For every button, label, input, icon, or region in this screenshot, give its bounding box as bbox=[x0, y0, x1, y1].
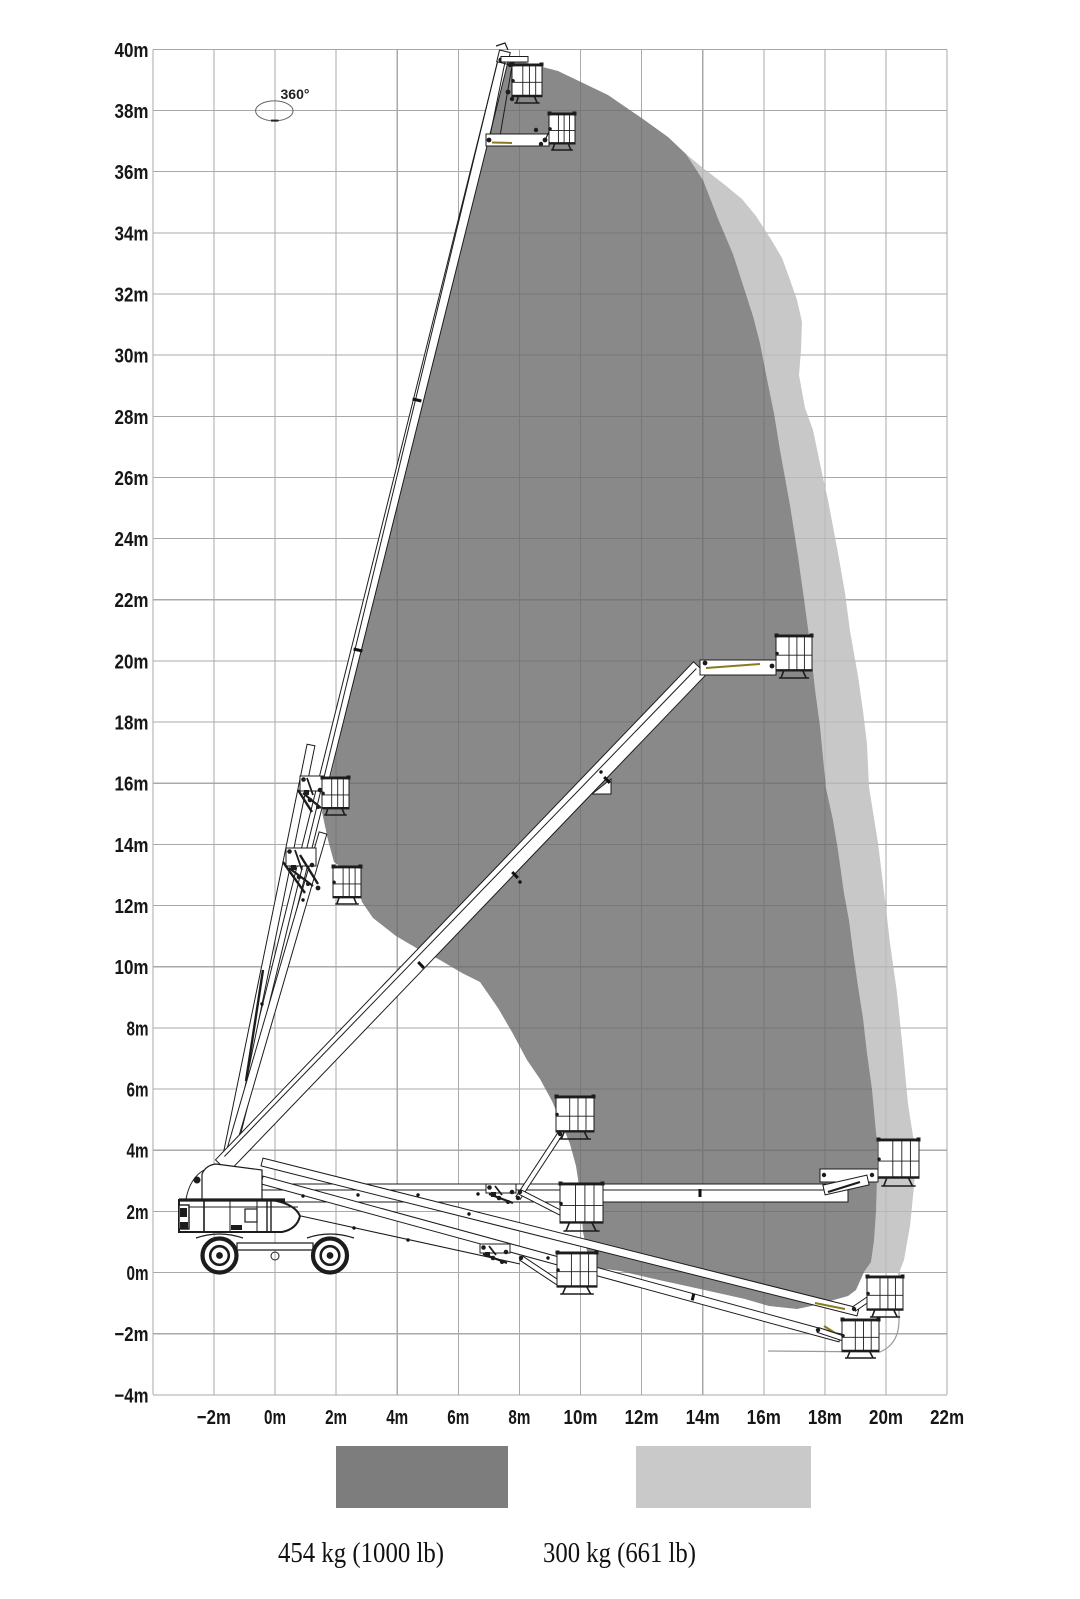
svg-text:10m: 10m bbox=[115, 956, 149, 979]
svg-text:20m: 20m bbox=[115, 650, 149, 673]
svg-text:38m: 38m bbox=[115, 100, 149, 123]
svg-text:24m: 24m bbox=[115, 528, 149, 551]
svg-text:18m: 18m bbox=[808, 1406, 842, 1429]
svg-text:0m: 0m bbox=[127, 1262, 149, 1285]
svg-text:26m: 26m bbox=[115, 467, 149, 490]
svg-text:36m: 36m bbox=[115, 161, 149, 184]
svg-text:20m: 20m bbox=[869, 1406, 903, 1429]
svg-text:14m: 14m bbox=[115, 834, 149, 857]
svg-text:28m: 28m bbox=[115, 406, 149, 429]
svg-text:22m: 22m bbox=[115, 589, 149, 612]
svg-text:2m: 2m bbox=[325, 1406, 347, 1429]
svg-text:−2m: −2m bbox=[197, 1406, 231, 1429]
svg-text:14m: 14m bbox=[686, 1406, 720, 1429]
svg-text:−4m: −4m bbox=[115, 1384, 149, 1407]
svg-text:6m: 6m bbox=[127, 1079, 149, 1102]
svg-text:6m: 6m bbox=[447, 1406, 469, 1429]
svg-text:0m: 0m bbox=[264, 1406, 286, 1429]
svg-text:10m: 10m bbox=[564, 1406, 598, 1429]
svg-text:−2m: −2m bbox=[115, 1323, 149, 1346]
svg-text:454 kg (1000 lb): 454 kg (1000 lb) bbox=[278, 1538, 444, 1569]
svg-text:30m: 30m bbox=[115, 345, 149, 368]
svg-text:40m: 40m bbox=[115, 39, 149, 62]
svg-text:16m: 16m bbox=[747, 1406, 781, 1429]
svg-text:18m: 18m bbox=[115, 712, 149, 735]
svg-text:4m: 4m bbox=[386, 1406, 408, 1429]
svg-text:16m: 16m bbox=[115, 773, 149, 796]
svg-text:2m: 2m bbox=[127, 1201, 149, 1224]
svg-text:4m: 4m bbox=[127, 1140, 149, 1163]
svg-text:12m: 12m bbox=[625, 1406, 659, 1429]
svg-text:8m: 8m bbox=[508, 1406, 530, 1429]
svg-text:32m: 32m bbox=[115, 283, 149, 306]
svg-text:360°: 360° bbox=[281, 86, 310, 102]
svg-text:300 kg (661 lb): 300 kg (661 lb) bbox=[543, 1538, 696, 1569]
svg-text:34m: 34m bbox=[115, 222, 149, 245]
svg-text:12m: 12m bbox=[115, 895, 149, 918]
svg-text:22m: 22m bbox=[930, 1406, 964, 1429]
svg-text:8m: 8m bbox=[127, 1017, 149, 1040]
